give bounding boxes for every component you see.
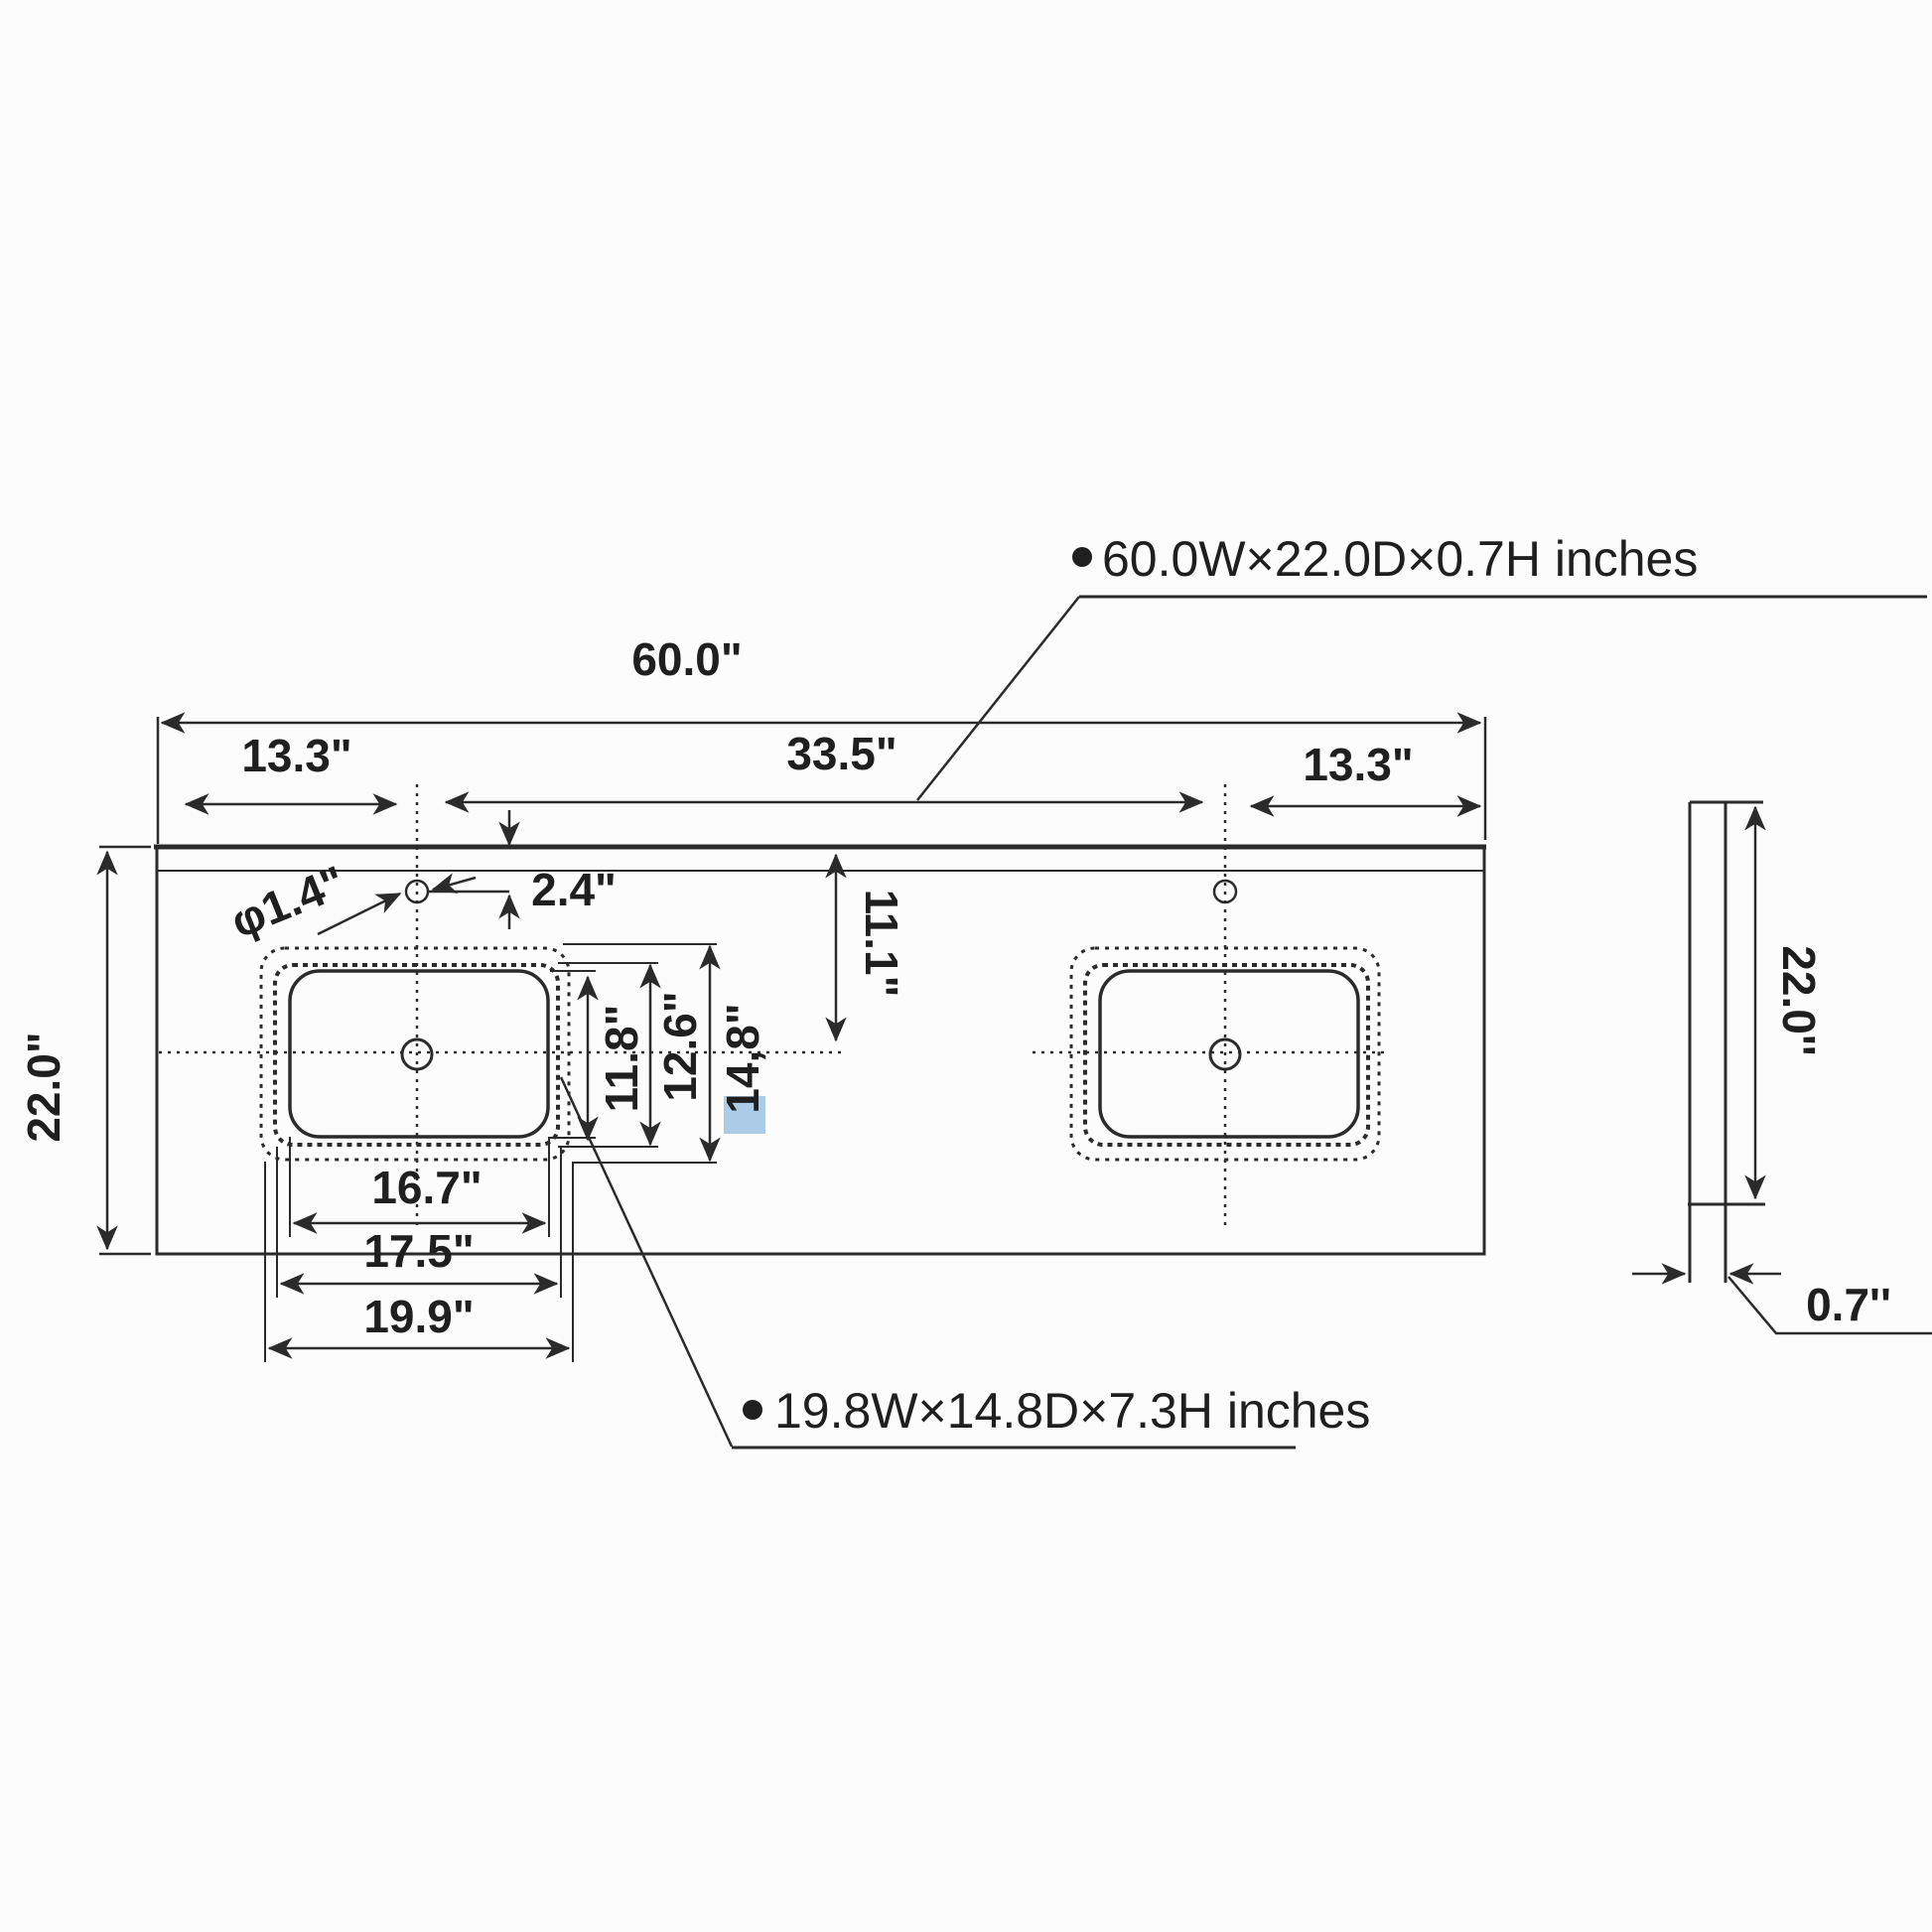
bowl-width-label: 16.7" [371,1162,482,1213]
right-sink-bowl [1100,971,1358,1137]
sink-depth-dimensions: 11.8" 12.6" 14,8" [550,944,768,1163]
faucet-hole-diameter-label: φ1.4" [223,856,352,948]
side-thickness-label: 0.7'' [1806,1279,1891,1330]
faucet-hole-dimensions: φ1.4" 2.4" [223,810,617,947]
center-span-label: 33.5" [786,728,897,779]
sink-width-dimensions: 16.7" 17.5" 19.9" [265,1137,573,1362]
bullet [1072,547,1092,567]
sink-callout-text: 19.8W×14.8D×7.3H inches [774,1383,1370,1439]
callout-leader [917,597,1079,800]
countertop-outline [157,847,1484,1254]
left-sink-cutout-dotted [261,948,569,1160]
depth-dimension-left: 22.0" [18,847,151,1254]
bowl-depth-label: 11.8" [596,1005,647,1113]
rim-width-label: 17.5" [363,1225,474,1277]
faucet-diameter-right-arrow [433,878,476,890]
countertop-callout: 60.0W×22.0D×0.7H inches [917,531,1927,800]
faucet-offset-label: 2.4" [531,864,617,915]
total-width-label: 60.0" [631,633,742,685]
vanity-top-technical-drawing: 60.0" 13.3" 33.5" 13.3" 22.0" φ1.4" 2.4"… [0,0,1932,1932]
sink-center-label: 11.1" [856,890,907,998]
left-sink-bowl [290,971,548,1137]
right-sink-rim-dotted [1085,965,1368,1145]
bullet [743,1400,762,1420]
rim-depth-label: 12.6" [654,991,706,1101]
sink-callout: 19.8W×14.8D×7.3H inches [561,1077,1370,1448]
spacing-dimensions-row: 13.3" 33.5" 13.3" [186,728,1480,806]
countertop-callout-text: 60.0W×22.0D×0.7H inches [1102,531,1698,587]
left-offset-label: 13.3" [241,730,351,781]
sink-center-dimension: 11.1" [836,855,907,1040]
cutout-depth-label: 14,8" [717,1003,768,1113]
side-profile-view: 22.0'' 0.7'' [1632,802,1932,1333]
depth-left-label: 22.0" [18,1032,69,1142]
right-offset-label: 13.3" [1303,739,1413,790]
side-depth-label: 22.0'' [1773,945,1825,1055]
cutout-width-label: 19.9" [363,1291,474,1342]
countertop-plan-view [154,784,1486,1254]
callout-leader [561,1077,732,1447]
